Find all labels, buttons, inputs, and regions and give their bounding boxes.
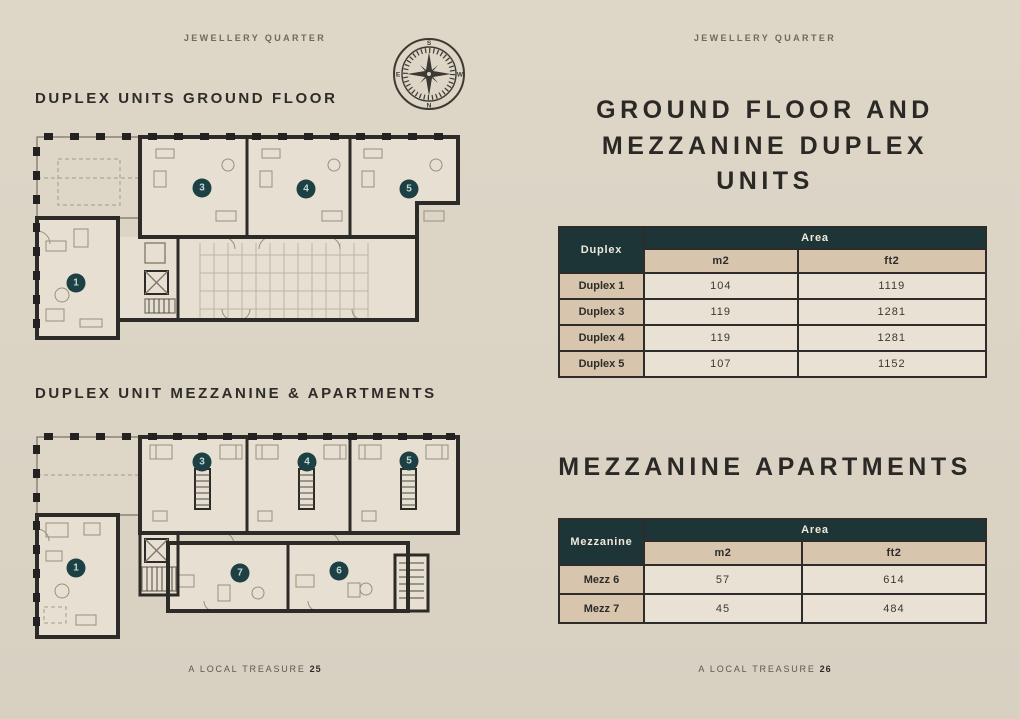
table-row: Mezz 7 45 484 xyxy=(559,594,986,623)
table-row: Duplex 5 107 1152 xyxy=(559,351,986,377)
value-m2: 57 xyxy=(644,565,802,594)
compass-icon: S W N E xyxy=(390,35,468,113)
floor-plan-ground-svg xyxy=(18,123,500,367)
compass-letter-bottom: N xyxy=(427,103,432,110)
compass-letter-top: S xyxy=(427,40,432,47)
row-label: Duplex 4 xyxy=(559,325,644,351)
row-label: Duplex 1 xyxy=(559,273,644,299)
footer-text: A LOCAL TREASURE xyxy=(698,664,815,674)
col-header-m2: m2 xyxy=(644,541,802,565)
page-number: 26 xyxy=(820,664,832,674)
table-row: Duplex 1 104 1119 xyxy=(559,273,986,299)
col-header-m2: m2 xyxy=(644,249,798,273)
row-label: Duplex 5 xyxy=(559,351,644,377)
row-label: Mezz 6 xyxy=(559,565,644,594)
compass-letter-left: E xyxy=(396,71,401,78)
page-number: 25 xyxy=(310,664,322,674)
col-header-ft2: ft2 xyxy=(802,541,986,565)
brochure-header-right: JEWELLERY QUARTER xyxy=(510,33,1020,43)
section-title-ground-floor: DUPLEX UNITS GROUND FLOOR xyxy=(35,90,338,107)
duplex-area-table: Duplex Area m2 ft2 Duplex 1 104 1119 Dup… xyxy=(558,226,987,378)
value-ft2: 1281 xyxy=(798,325,986,351)
table-corner-cell: Duplex xyxy=(559,227,644,273)
mezzanine-area-table: Mezzanine Area m2 ft2 Mezz 6 57 614 Mezz… xyxy=(558,518,987,624)
value-m2: 45 xyxy=(644,594,802,623)
compass-letter-right: W xyxy=(457,71,464,78)
value-m2: 104 xyxy=(644,273,798,299)
footer-right: A LOCAL TREASURE26 xyxy=(510,664,1020,674)
row-label: Duplex 3 xyxy=(559,299,644,325)
value-m2: 107 xyxy=(644,351,798,377)
floor-plan-ground: 1 3 4 5 xyxy=(18,123,500,367)
unit-badge: 3 xyxy=(193,453,212,472)
value-m2: 119 xyxy=(644,299,798,325)
table-corner-cell: Mezzanine xyxy=(559,519,644,565)
footer-left: A LOCAL TREASURE25 xyxy=(0,664,510,674)
unit-badge: 4 xyxy=(298,453,317,472)
value-ft2: 1152 xyxy=(798,351,986,377)
value-ft2: 1281 xyxy=(798,299,986,325)
page-left: JEWELLERY QUARTER S W N E DUPLEX UNITS G… xyxy=(0,0,510,719)
table-row: Mezz 6 57 614 xyxy=(559,565,986,594)
compass-svg: S W N E xyxy=(390,35,468,113)
table-row: Duplex 4 119 1281 xyxy=(559,325,986,351)
unit-badge: 7 xyxy=(231,564,250,583)
area-header-cell: Area xyxy=(644,227,986,249)
unit-badge: 6 xyxy=(330,562,349,581)
row-label: Mezz 7 xyxy=(559,594,644,623)
unit-badge: 4 xyxy=(297,180,316,199)
value-ft2: 614 xyxy=(802,565,986,594)
floor-plan-mezzanine-svg xyxy=(18,425,500,657)
unit-badge: 3 xyxy=(193,179,212,198)
page-title-mezzanine-apartments: MEZZANINE APARTMENTS xyxy=(555,450,975,486)
unit-badge: 1 xyxy=(67,559,86,578)
unit-badge: 1 xyxy=(67,274,86,293)
value-ft2: 484 xyxy=(802,594,986,623)
floor-plan-mezzanine: 1 3 4 5 7 6 xyxy=(18,425,500,657)
brochure-spread: JEWELLERY QUARTER S W N E DUPLEX UNITS G… xyxy=(0,0,1020,719)
section-title-mezzanine: DUPLEX UNIT MEZZANINE & APARTMENTS xyxy=(35,385,437,402)
table-row: Duplex 3 119 1281 xyxy=(559,299,986,325)
value-ft2: 1119 xyxy=(798,273,986,299)
page-right: JEWELLERY QUARTER GROUND FLOOR AND MEZZA… xyxy=(510,0,1020,719)
value-m2: 119 xyxy=(644,325,798,351)
area-header-cell: Area xyxy=(644,519,986,541)
unit-badge: 5 xyxy=(400,452,419,471)
col-header-ft2: ft2 xyxy=(798,249,986,273)
page-title-duplex-units: GROUND FLOOR AND MEZZANINE DUPLEX UNITS xyxy=(555,93,975,200)
unit-badge: 5 xyxy=(400,180,419,199)
footer-text: A LOCAL TREASURE xyxy=(188,664,305,674)
